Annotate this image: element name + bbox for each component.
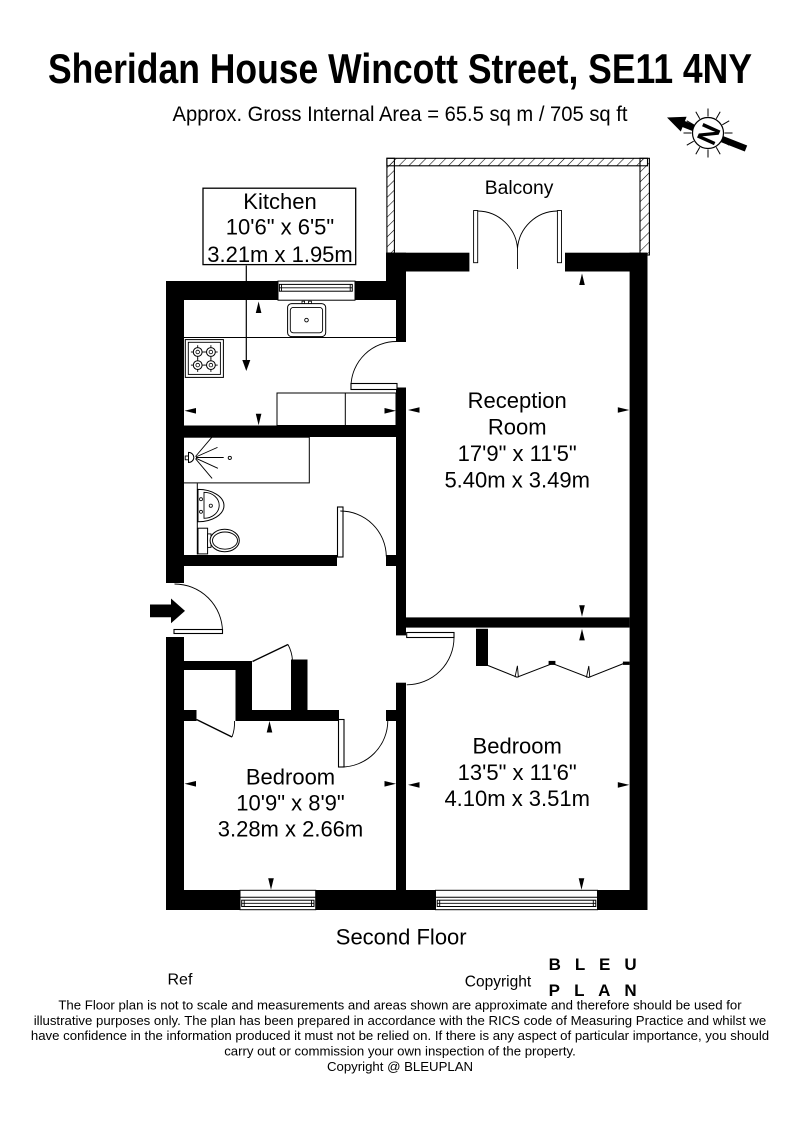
svg-text:illustrative purposes only. Th: illustrative purposes only. The plan has…	[34, 1013, 767, 1028]
svg-text:Second Floor: Second Floor	[336, 924, 467, 949]
svg-text:Bedroom: Bedroom	[473, 733, 562, 758]
svg-text:5.40m x 3.49m: 5.40m x 3.49m	[444, 468, 590, 493]
svg-text:Reception: Reception	[468, 388, 567, 413]
svg-text:Sheridan House Wincott Street,: Sheridan House Wincott Street, SE11 4NY	[48, 45, 752, 92]
svg-text:carry out or commission your o: carry out or commission your own inspect…	[224, 1043, 576, 1058]
svg-text:17'9" x 11'5": 17'9" x 11'5"	[458, 441, 577, 466]
svg-text:Copyright: Copyright	[465, 973, 532, 990]
svg-text:Ref: Ref	[168, 972, 193, 989]
svg-text:have confidence in the informa: have confidence in the information produ…	[31, 1028, 769, 1043]
svg-text:3.28m x 2.66m: 3.28m x 2.66m	[218, 817, 364, 842]
svg-text:13'5" x 11'6": 13'5" x 11'6"	[458, 760, 577, 785]
svg-text:4.10m x 3.51m: 4.10m x 3.51m	[444, 786, 590, 811]
svg-text:3.21m x 1.95m: 3.21m x 1.95m	[207, 242, 353, 267]
svg-text:Bedroom: Bedroom	[246, 765, 335, 790]
svg-text:10'6" x 6'5": 10'6" x 6'5"	[226, 215, 334, 240]
svg-text:The Floor plan is not to scale: The Floor plan is not to scale and measu…	[58, 998, 742, 1013]
svg-text:Room: Room	[488, 415, 547, 440]
svg-text:10'9" x 8'9": 10'9" x 8'9"	[236, 791, 344, 816]
svg-text:Copyright @ BLEUPLAN: Copyright @ BLEUPLAN	[327, 1059, 473, 1074]
svg-text:Kitchen: Kitchen	[243, 189, 316, 214]
svg-text:Approx. Gross Internal Area =: Approx. Gross Internal Area = 65.5 sq m …	[173, 103, 628, 126]
svg-text:Balcony: Balcony	[485, 178, 554, 199]
